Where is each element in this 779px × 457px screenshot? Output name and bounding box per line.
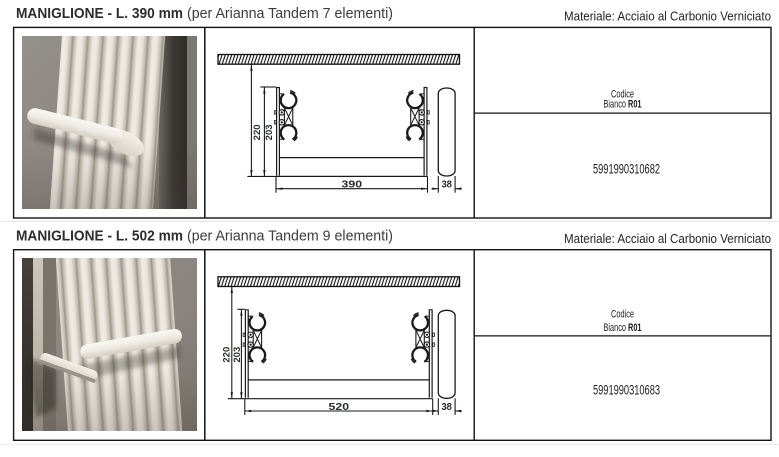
svg-text:Materiale: Acciaio al Carbonio: Materiale: Acciaio al Carbonio Verniciat… bbox=[564, 232, 771, 246]
svg-text:Bianco R01: Bianco R01 bbox=[604, 322, 642, 334]
svg-text:38: 38 bbox=[441, 179, 452, 191]
svg-text:203: 203 bbox=[264, 124, 275, 140]
svg-text:220: 220 bbox=[221, 347, 232, 363]
svg-text:Materiale: Acciaio al Carbonio: Materiale: Acciaio al Carbonio Verniciat… bbox=[564, 10, 771, 24]
svg-text:520: 520 bbox=[329, 401, 350, 413]
svg-text:MANIGLIONE - L. 390 mm: MANIGLIONE - L. 390 mm bbox=[16, 5, 183, 22]
svg-text:220: 220 bbox=[252, 124, 263, 140]
svg-text:Bianco R01: Bianco R01 bbox=[604, 99, 642, 111]
svg-text:5991990310682: 5991990310682 bbox=[593, 162, 660, 177]
svg-text:5991990310683: 5991990310683 bbox=[593, 382, 660, 397]
svg-text:Codice: Codice bbox=[611, 309, 634, 321]
svg-text:MANIGLIONE - L. 502 mm: MANIGLIONE - L. 502 mm bbox=[16, 228, 183, 245]
svg-text:390: 390 bbox=[342, 179, 363, 191]
svg-text:(per Arianna Tandem 7 elementi: (per Arianna Tandem 7 elementi) bbox=[187, 5, 393, 22]
svg-text:(per Arianna Tandem 9 elementi: (per Arianna Tandem 9 elementi) bbox=[187, 228, 393, 245]
svg-text:203: 203 bbox=[232, 347, 243, 363]
svg-text:38: 38 bbox=[441, 401, 452, 413]
